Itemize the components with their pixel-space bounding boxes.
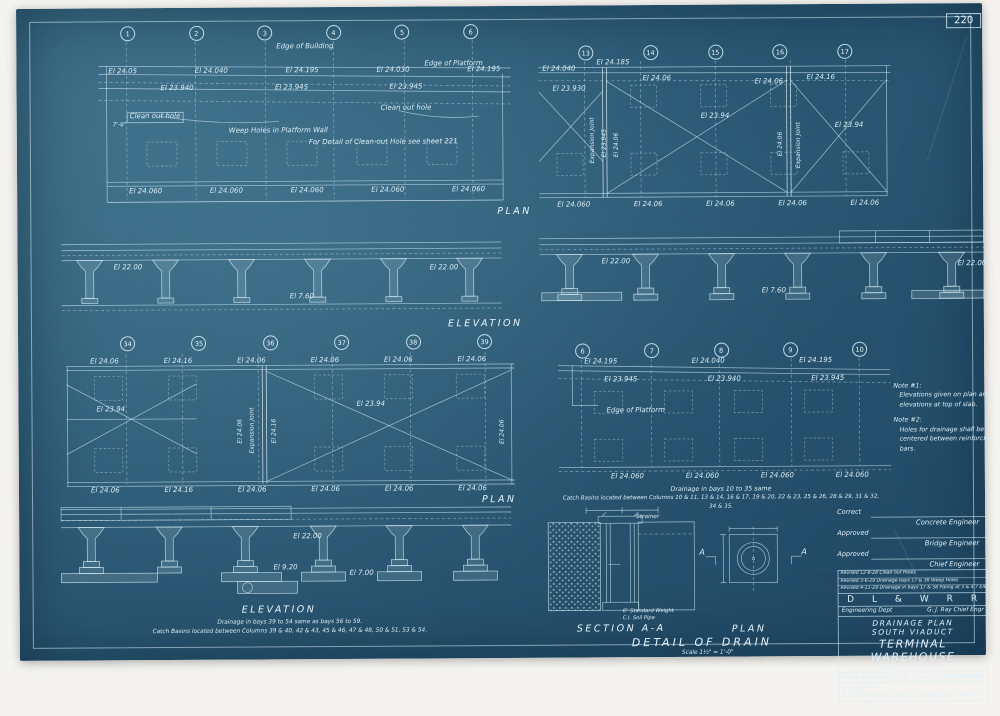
elevation-label: El 24.06 [777, 112, 784, 156]
elevation-label: El 24.06 [91, 487, 120, 495]
elevation-label: El 24.040 [692, 358, 725, 366]
column-marker: 34 [120, 336, 135, 351]
column-marker: 37 [334, 335, 349, 350]
elevation-label: El 23.94 [835, 122, 864, 130]
pipe-note: 6" Standard Weight C.I. Soil Pipe [623, 608, 674, 622]
signature-row-approved1: Approved Bridge Engineer [837, 527, 987, 549]
elevation-label: El 24.06 [384, 357, 413, 365]
signature-label: Approved [837, 550, 868, 558]
elevation-label: El 24.06 [237, 357, 266, 365]
credits-text: Designed C.T.K. Traced C.T.K. Checked H.… [862, 672, 987, 711]
elevation-label: El 24.195 [584, 358, 617, 366]
elevation-label: El 23.930 [552, 85, 585, 93]
office-location: Hoboken, N.J. [915, 692, 953, 698]
note1-body: Elevations given on plan are elevations … [893, 390, 995, 409]
signature-label: Correct [837, 508, 861, 516]
plan-heading: PLAN [497, 206, 532, 217]
edge-of-building-label: Edge of Building [276, 43, 333, 51]
elevation-label: El 24.05 [108, 68, 137, 76]
elevation-label: El 24.060 [836, 472, 869, 480]
column-marker: 15 [708, 45, 723, 60]
elevation-label: El 24.060 [129, 188, 162, 196]
elevation-label: El 22.00 [430, 264, 459, 272]
title-block: Correct Concrete Engineer Approved Bridg… [837, 506, 988, 702]
railroad-letter: R [947, 594, 954, 604]
elevation-labels-top: El 24.195El 24.040El 24.195 [584, 357, 832, 366]
traced-by: Traced C.T.K. [914, 674, 950, 680]
elevation-label: El 24.06 [236, 396, 243, 444]
side-notes: Note #1: Elevations given on plan are el… [893, 381, 995, 454]
detail-reference-note: For Detail of Clean-out Hole see sheet 2… [309, 138, 458, 147]
clean-out-hole-label: Clean out hole [381, 104, 432, 112]
column-marker: 13 [578, 45, 593, 60]
elevation-heading: ELEVATION [242, 604, 317, 615]
elevation-label: El 24.060 [371, 187, 404, 195]
elevation-labels-mid: El 23.945El 23.940El 23.945 [604, 375, 844, 384]
elevation-label: El 24.16 [806, 74, 835, 82]
elevation-label: El 24.16 [164, 487, 193, 495]
elevation-label: El 24.060 [761, 472, 794, 480]
plan-bottom-left: 343536373839 El 24.06El 24.16El 24.06El … [66, 342, 515, 497]
elevation-label: El 23.94 [356, 401, 385, 409]
elevation-label: El 23.945 [601, 107, 608, 157]
elevation-label: El 24.060 [611, 473, 644, 481]
elevation-label: El 22.00 [958, 260, 987, 268]
elevation-label: El 24.060 [557, 201, 590, 209]
elevation-heading: ELEVATION [448, 318, 523, 329]
edge-of-platform-label: Edge of Platform [606, 407, 665, 415]
elevation-label: El 24.185 [596, 59, 629, 67]
column-marker: 35 [191, 336, 206, 351]
elevation-label: El 23.945 [604, 376, 637, 384]
column-markers-row: 343536373839 [120, 334, 492, 351]
elevation-label: El 23.940 [160, 85, 193, 93]
section-cut-letter: A [699, 549, 705, 558]
expansion-joint-label: Expansion Joint [795, 104, 802, 168]
elevation-label: El 23.945 [389, 83, 422, 91]
dimension-label: 7'-6" [113, 122, 127, 128]
column-marker: 8 [714, 343, 729, 358]
title-line3: TERMINAL WAREHOUSE [839, 637, 987, 664]
column-marker: 1 [120, 26, 135, 41]
column-marker: 38 [406, 334, 421, 349]
scratch-mark [927, 36, 967, 160]
column-marker: 7 [644, 343, 659, 358]
column-marker: 39 [477, 334, 492, 349]
signature-role: Concrete Engineer [916, 518, 979, 526]
revision-box: Revised 12-8-28 Clean out HolesRevised 3… [837, 569, 987, 594]
credits-row: 220 Designed C.T.K. Traced C.T.K. Checke… [838, 682, 988, 702]
dept-label: Engineering Dept [842, 608, 893, 614]
elevation-label: El 24.040 [195, 68, 228, 76]
drain-plan-detail: A A [701, 526, 807, 593]
detail-scale: Scale 1½" = 1'-0" [682, 650, 734, 657]
title-line4: JERSEY CITY, N.J. [839, 663, 987, 671]
expansion-joint-label: Expansion Joint [589, 99, 596, 163]
elevation-label: El 24.060 [291, 187, 324, 195]
expansion-joint-label: Expansion Joint [248, 390, 255, 454]
sheet-number-box: 220 [839, 683, 862, 701]
railroad-letter: D [847, 595, 855, 605]
column-marker: 6 [463, 24, 478, 39]
catch-basin-note: Drainage in bays 39 to 54 same as bays 5… [120, 617, 460, 636]
railroad-letter: R [971, 594, 978, 604]
detail-title: DETAIL OF DRAIN [632, 635, 772, 649]
elevation-labels-bottom: El 24.060El 24.06El 24.06El 24.06El 24.0… [557, 200, 879, 210]
drawing-title-area: DRAINAGE PLAN SOUTH VIADUCT TERMINAL WAR… [838, 616, 988, 673]
elevation-label: El 24.040 [542, 66, 575, 74]
plan-top-left: 123456 Edge of Building Edge of Platform… [98, 28, 511, 221]
elevation-label: El 23.94 [96, 406, 125, 414]
elevation-labels-mid: El 23.940El 23.945El 23.945 [160, 83, 422, 92]
column-marker: 36 [263, 335, 278, 350]
column-marker: 14 [643, 45, 658, 60]
column-marker: 3 [257, 25, 272, 40]
elevation-label: El 24.06 [311, 357, 340, 365]
elevation-label: El 24.06 [457, 356, 486, 364]
elevation-label: El 24.06 [498, 400, 505, 444]
weep-holes-label: Weep Holes in Platform Wall [229, 127, 328, 135]
column-marker: 17 [837, 44, 852, 59]
plan-top-right: 1314151617 El 24.040 El 24.185 El 24.06 … [538, 50, 891, 207]
sheet-number-corner: 220 [946, 13, 981, 28]
elevation-label: El 24.06 [311, 486, 340, 494]
elevation-label: El 24.06 [642, 75, 671, 83]
railroad-initials-row: DL&WRR [838, 593, 988, 607]
column-marker: 9 [783, 342, 798, 357]
title-line2: SOUTH VIADUCT [839, 627, 987, 637]
railroad-letter: L [872, 594, 878, 604]
elevation-label: El 23.945 [275, 84, 308, 92]
column-marker: 4 [326, 25, 341, 40]
sheet-of-sheets: Sheet of Sheets [865, 692, 909, 698]
signature-role: Chief Engineer [929, 560, 979, 568]
elevation-label: El 24.16 [270, 397, 277, 443]
elevation-label: El 24.195 [286, 67, 319, 75]
elevation-label: El 9.20 [273, 564, 297, 572]
elevation-label: El 22.00 [293, 533, 322, 541]
section-cut-letter: A [801, 548, 807, 557]
revision-line: Revised 4-11-29 Drainage in bays 17 & 38… [839, 584, 987, 592]
catch-basin-note-line2: Catch Basins located between Columns 39 … [120, 626, 460, 637]
elevation-mid-left: El 22.00 El 22.00 El 7.60 [61, 240, 501, 318]
elevation-mid-right: El 22.00 El 22.00 El 7.60 [539, 230, 983, 313]
signature-row-approved2: Approved Chief Engineer [837, 548, 987, 570]
signature-role: Bridge Engineer [925, 539, 980, 547]
signature-row-correct: Correct Concrete Engineer [837, 506, 987, 528]
designed-by: Designed C.T.K. [865, 674, 909, 680]
elevation-label: El 24.06 [754, 78, 783, 86]
elevation-label: El 24.030 [376, 67, 409, 75]
elevation-bottom-left: El 22.00 El 9.20 El 7.00 [61, 505, 512, 612]
elevation-label: El 24.06 [385, 486, 414, 494]
plan-bottom-right: 678910 El 24.195El 24.040El 24.195 El 23… [558, 344, 891, 486]
elevation-label: El 7.60 [762, 287, 786, 295]
column-marker: 6 [575, 343, 590, 358]
elevation-label: El 24.06 [634, 201, 663, 209]
plan-heading: PLAN [482, 494, 517, 505]
section-a-a: Strainer 6" Standard Weight C.I. Soil Pi… [546, 504, 697, 630]
elevation-label: El 24.195 [467, 66, 500, 74]
clean-out-hole-label: Clean out hole [127, 112, 184, 123]
elevation-label: El 23.94 [701, 113, 730, 121]
elevation-labels-bottom: El 24.060El 24.060El 24.060El 24.060 [611, 472, 869, 481]
railroad-letter: & [895, 594, 903, 604]
elevation-label: El 7.00 [349, 570, 373, 578]
column-marker: 5 [394, 25, 409, 40]
strainer-label: Strainer [636, 514, 659, 521]
elevation-label: El 22.00 [114, 264, 143, 272]
elevation-label: El 24.06 [851, 200, 880, 208]
note2-body: Holes for drainage shall be centered bet… [894, 425, 996, 454]
chief-engineer-name: G. J. Ray Chief Engr [927, 607, 984, 613]
pipe-note-line1: 6" Standard Weight [623, 608, 674, 615]
elevation-label: El 24.06 [238, 486, 267, 494]
elevation-label: El 7.60 [290, 293, 314, 301]
detail-plan-heading: PLAN [732, 623, 767, 634]
elevation-label: El 24.195 [799, 357, 832, 365]
signature-label: Approved [837, 529, 868, 537]
elevation-label: El 22.00 [602, 258, 631, 266]
credits-line2: Sheet of Sheets Hoboken, N.J. Feb 6, '29 [865, 691, 984, 710]
credits-line1: Designed C.T.K. Traced C.T.K. Checked H.… [865, 673, 984, 692]
column-markers-row: 123456 [120, 24, 478, 41]
elevation-label: El 24.06 [90, 358, 119, 366]
elevation-label: El 23.940 [708, 376, 741, 384]
railroad-letter: W [920, 594, 930, 604]
blueprint-sheet: 220 123456 Edge of Building Edge of Plat… [16, 3, 986, 661]
elevation-label: El 24.06 [613, 113, 620, 157]
elevation-label: El 23.945 [811, 375, 844, 383]
elevation-label: El 24.060 [452, 186, 485, 194]
elevation-label: El 24.06 [706, 201, 735, 209]
elevation-label: El 24.16 [164, 358, 193, 366]
column-marker: 10 [852, 342, 867, 357]
elevation-label: El 24.06 [778, 200, 807, 208]
elevation-label: El 24.06 [458, 485, 487, 493]
elevation-label: El 24.060 [686, 473, 719, 481]
column-marker: 16 [772, 44, 787, 59]
column-marker: 2 [189, 26, 204, 41]
section-heading: SECTION A-A [577, 623, 666, 635]
elevation-label: El 24.060 [210, 188, 243, 196]
pipe-note-line2: C.I. Soil Pipe [623, 615, 674, 622]
